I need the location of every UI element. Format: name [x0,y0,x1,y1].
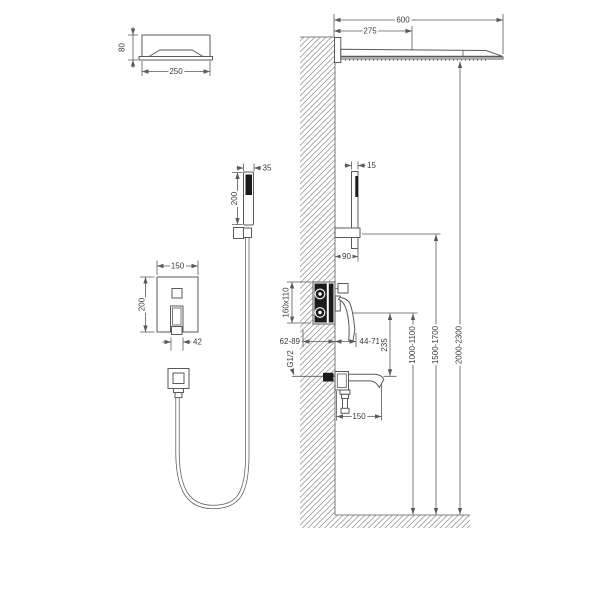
dim-valve-handle: 44-71 [360,337,381,346]
head-front-plate [139,57,213,61]
dim-mixer-height: 200 [138,297,147,311]
dim-mixer-install-height-group: 1000-1100 [408,314,417,515]
view-hand-shower-side [335,172,360,249]
dim-valve-recess-group: 160x110 [282,282,293,323]
dim-head-side-length-group: 600 [334,16,503,25]
spout-pipe-collar [340,390,350,394]
dim-hand-length: 200 [230,191,239,205]
spout-pipe-end [341,408,349,413]
dim-valve-spout-gap: 235 [380,338,389,352]
mixer-diverter-button [172,289,182,299]
dim-hand-length-group: 200 [230,173,239,225]
wall-outlet-nut-top [174,389,184,393]
dim-head-side-center-group: 275 [334,27,412,36]
dim-mixer-width: 150 [171,262,185,271]
wall-outlet-nut-bottom [175,393,182,398]
mixer-handle-grip [172,327,183,335]
spout-pipe-nipple [343,399,348,409]
dim-hand-width: 35 [263,164,272,173]
valve-port-bottom-center [318,311,321,314]
dim-mixer-handle-group: 42 [163,338,203,347]
valve-port-top-center [318,292,321,295]
dim-mixer-width-group: 150 [157,262,198,271]
dim-head-front-width-group: 250 [142,67,210,76]
view-head-side [335,38,504,63]
hand-shower-spray-face [246,175,253,196]
valve-diverter-knob [338,284,348,294]
hand-shower-side-holder [335,228,360,238]
dim-head-install-height: 2000-2300 [455,325,464,364]
dim-spout-length: 150 [352,412,366,421]
head-side-body [341,49,503,56]
view-wall-outlet-front [168,369,189,398]
installation-diagram: 80 250 600 275 35 200 [0,0,600,600]
floor-hatch [335,515,470,528]
dim-hand-side-width: 15 [367,161,376,170]
dim-head-side-length: 600 [396,16,410,25]
wall-outlet-inner [173,373,184,384]
dim-valve-handle-group: 44-71 [335,337,381,346]
dim-valve-spout-gap-group: 235 [380,314,390,376]
head-side-bracket [335,38,341,63]
hand-shower-holder-left [234,228,244,239]
dim-valve-thread-group: G1/2 [286,350,295,375]
dim-head-front-height: 80 [118,43,127,52]
dim-mixer-install-height: 1000-1100 [408,326,417,364]
head-side-plate [341,57,503,59]
valve-lever-handle [339,297,355,341]
dim-mixer-height-group: 200 [138,277,147,332]
spout-arm [349,374,384,387]
dim-valve-recess: 160x110 [282,287,291,318]
dim-head-front-width: 250 [169,67,183,76]
dim-hand-side-width-group: 15 [345,161,377,170]
dim-valve-thread: G1/2 [286,350,295,368]
diagram-svg: 80 250 600 275 35 200 [0,0,600,600]
dim-valve-depth: 62-89 [280,337,301,346]
view-mixer-front [157,277,198,335]
view-head-front [139,35,213,60]
spout-wall-fitting [323,373,334,382]
dim-head-front-height-group: 80 [118,27,134,68]
dim-holder-depth: 90 [342,252,351,261]
dim-holder-install-height: 1500-1700 [431,325,440,364]
dim-mixer-handle: 42 [193,338,202,347]
dim-head-side-center: 275 [363,27,377,36]
dim-holder-depth-group: 90 [335,252,358,261]
dim-holder-install-height-group: 1500-1700 [431,235,440,515]
spout-pipe-nut [342,394,349,398]
hand-shower-side-face [355,176,358,197]
hand-shower-holder-right [244,228,252,238]
dim-head-install-height-group: 2000-2300 [455,62,464,515]
valve-box-slit [327,284,329,323]
